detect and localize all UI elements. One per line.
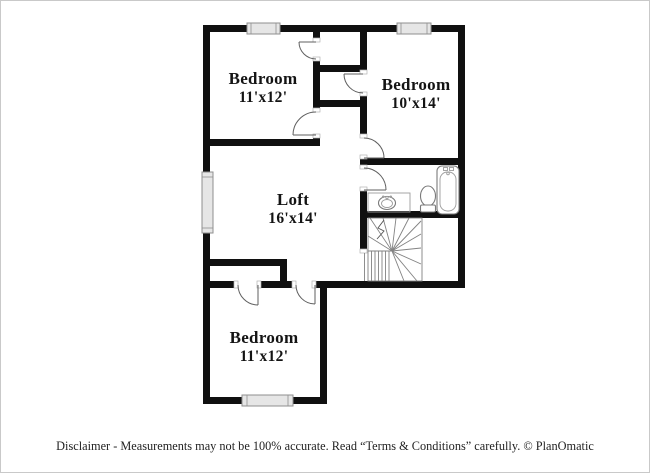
room-dims-bedroom-top-right: 10'x14' (391, 95, 440, 112)
wall (315, 281, 465, 288)
floor-plan-svg: Bedroom 11'x12' Bedroom 10'x14' Loft 16'… (0, 0, 650, 473)
wall (360, 95, 367, 138)
window (242, 395, 293, 406)
wall (258, 281, 296, 288)
door-swing (293, 112, 316, 135)
wall (320, 100, 360, 107)
room-dims-loft: 16'x14' (268, 210, 317, 227)
wall (360, 32, 367, 74)
room-label-loft: Loft (277, 190, 309, 209)
staircase (365, 218, 423, 281)
wall (210, 139, 320, 146)
room-label-bedroom-bottom: Bedroom (230, 328, 299, 347)
jamb (313, 108, 320, 112)
wall (320, 65, 360, 72)
wall (458, 25, 465, 288)
toilet-icon (421, 186, 436, 212)
jamb (313, 38, 320, 42)
door-swing (238, 285, 258, 305)
wall (210, 259, 287, 266)
disclaimer-text: Disclaimer - Measurements may not be 100… (56, 439, 594, 453)
room-label-bedroom-top-left: Bedroom (229, 69, 298, 88)
jamb (360, 134, 367, 138)
jamb (234, 281, 238, 288)
room-label-bedroom-top-right: Bedroom (382, 75, 451, 94)
sink-vanity-icon (368, 193, 410, 212)
wall (360, 190, 367, 253)
bathtub-icon (437, 166, 459, 214)
door-swing (299, 42, 316, 59)
room-dims-bedroom-bottom: 11'x12' (240, 348, 289, 365)
jamb (360, 70, 367, 74)
window (247, 23, 280, 34)
window (397, 23, 431, 34)
wall (313, 58, 320, 112)
room-dims-bedroom-top-left: 11'x12' (239, 89, 288, 106)
wall (367, 158, 458, 165)
jamb (292, 281, 296, 288)
door-swing (344, 74, 363, 93)
wall (320, 281, 327, 404)
window (202, 172, 213, 233)
floor-plan-page: Bedroom 11'x12' Bedroom 10'x14' Loft 16'… (0, 0, 650, 473)
jamb (360, 249, 367, 253)
